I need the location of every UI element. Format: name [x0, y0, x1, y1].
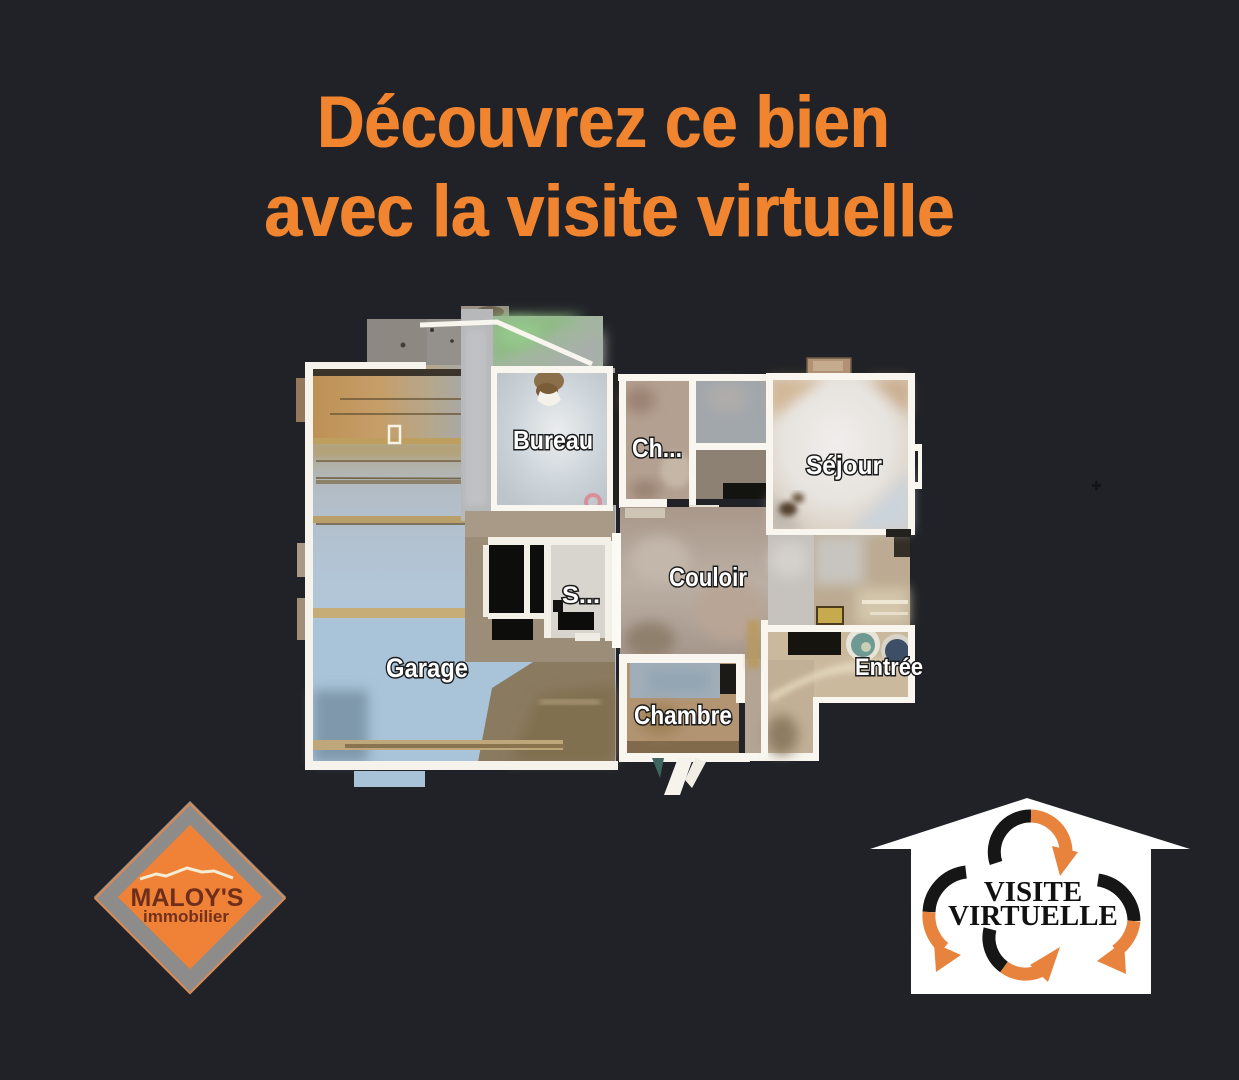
svg-text:immobilier: immobilier [143, 907, 229, 926]
svg-text:VIRTUELLE: VIRTUELLE [948, 900, 1118, 932]
svg-text:Couloir: Couloir [669, 562, 747, 592]
svg-text:Ch...: Ch... [632, 433, 682, 463]
svg-text:Séjour: Séjour [806, 450, 882, 480]
svg-text:Garage: Garage [386, 653, 468, 683]
svg-text:S...: S... [562, 582, 600, 609]
svg-text:Entrée: Entrée [855, 654, 923, 681]
svg-text:Chambre: Chambre [634, 700, 732, 730]
svg-text:Bureau: Bureau [513, 425, 593, 455]
